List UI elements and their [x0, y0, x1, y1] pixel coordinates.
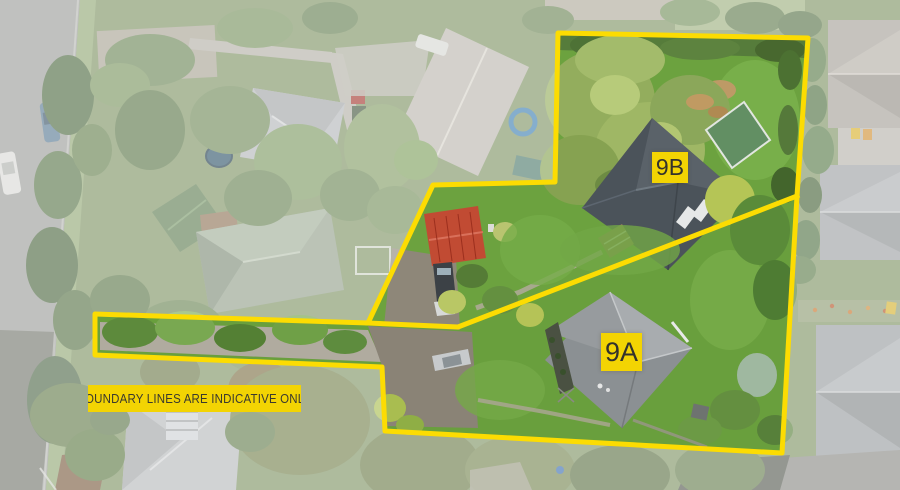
disclaimer-text: BOUNDARY LINES ARE INDICATIVE ONLY — [88, 392, 301, 406]
lot-label-9a: 9A — [601, 333, 642, 371]
aerial-photo: 9B 9A BOUNDARY LINES ARE INDICATIVE ONLY — [0, 0, 900, 490]
red-garage-roof — [424, 206, 486, 266]
lot-label-9b: 9B — [652, 152, 688, 183]
aerial-scene — [0, 0, 900, 490]
disclaimer-banner: BOUNDARY LINES ARE INDICATIVE ONLY — [88, 385, 301, 412]
